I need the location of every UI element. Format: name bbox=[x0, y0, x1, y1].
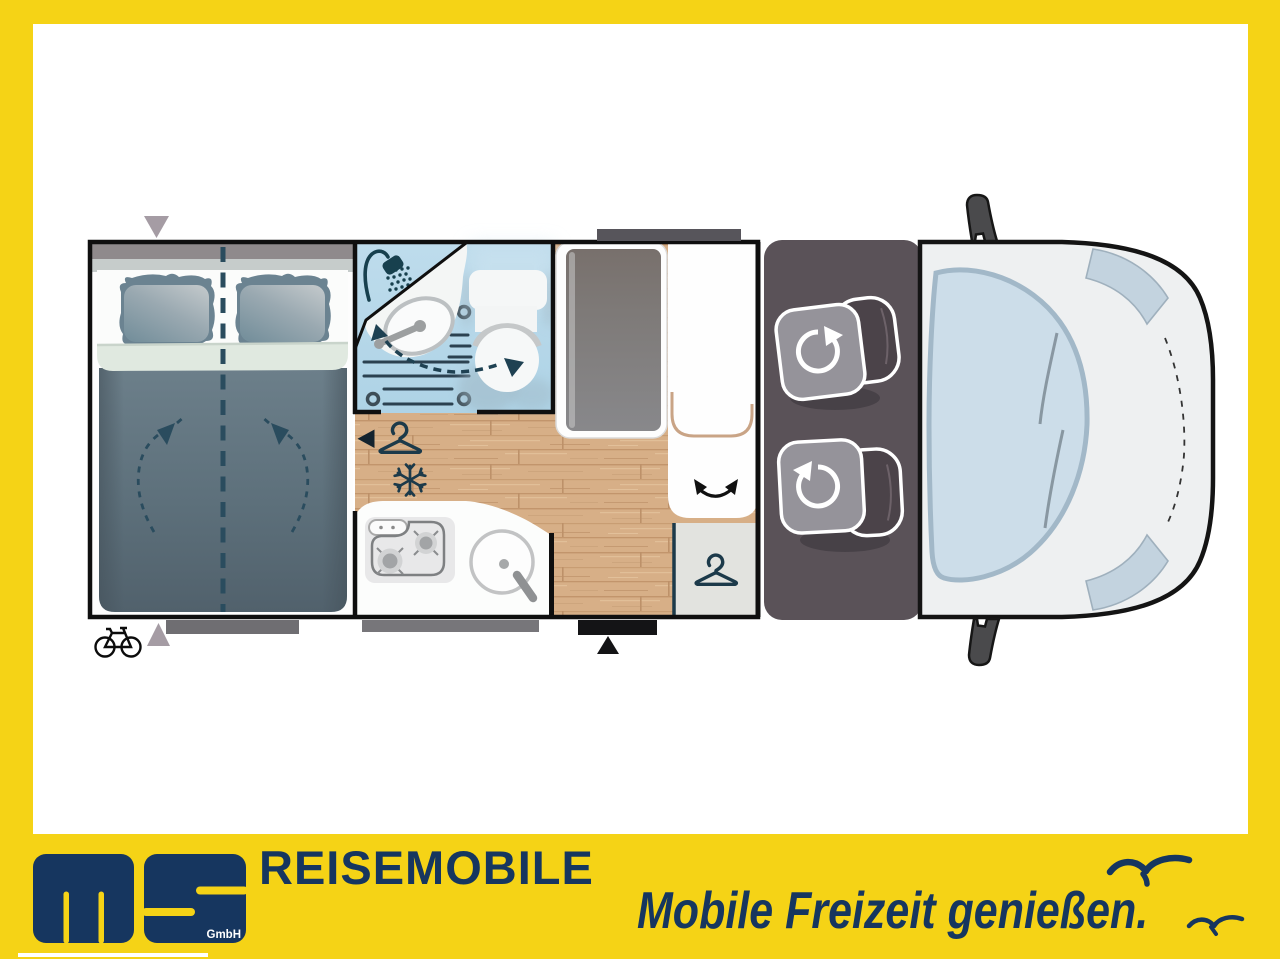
svg-text:GmbH: GmbH bbox=[207, 929, 242, 941]
svg-text:REISEMOBILE: REISEMOBILE bbox=[259, 841, 594, 894]
svg-text:Mobile Freizeit genießen.: Mobile Freizeit genießen. bbox=[637, 882, 1148, 940]
